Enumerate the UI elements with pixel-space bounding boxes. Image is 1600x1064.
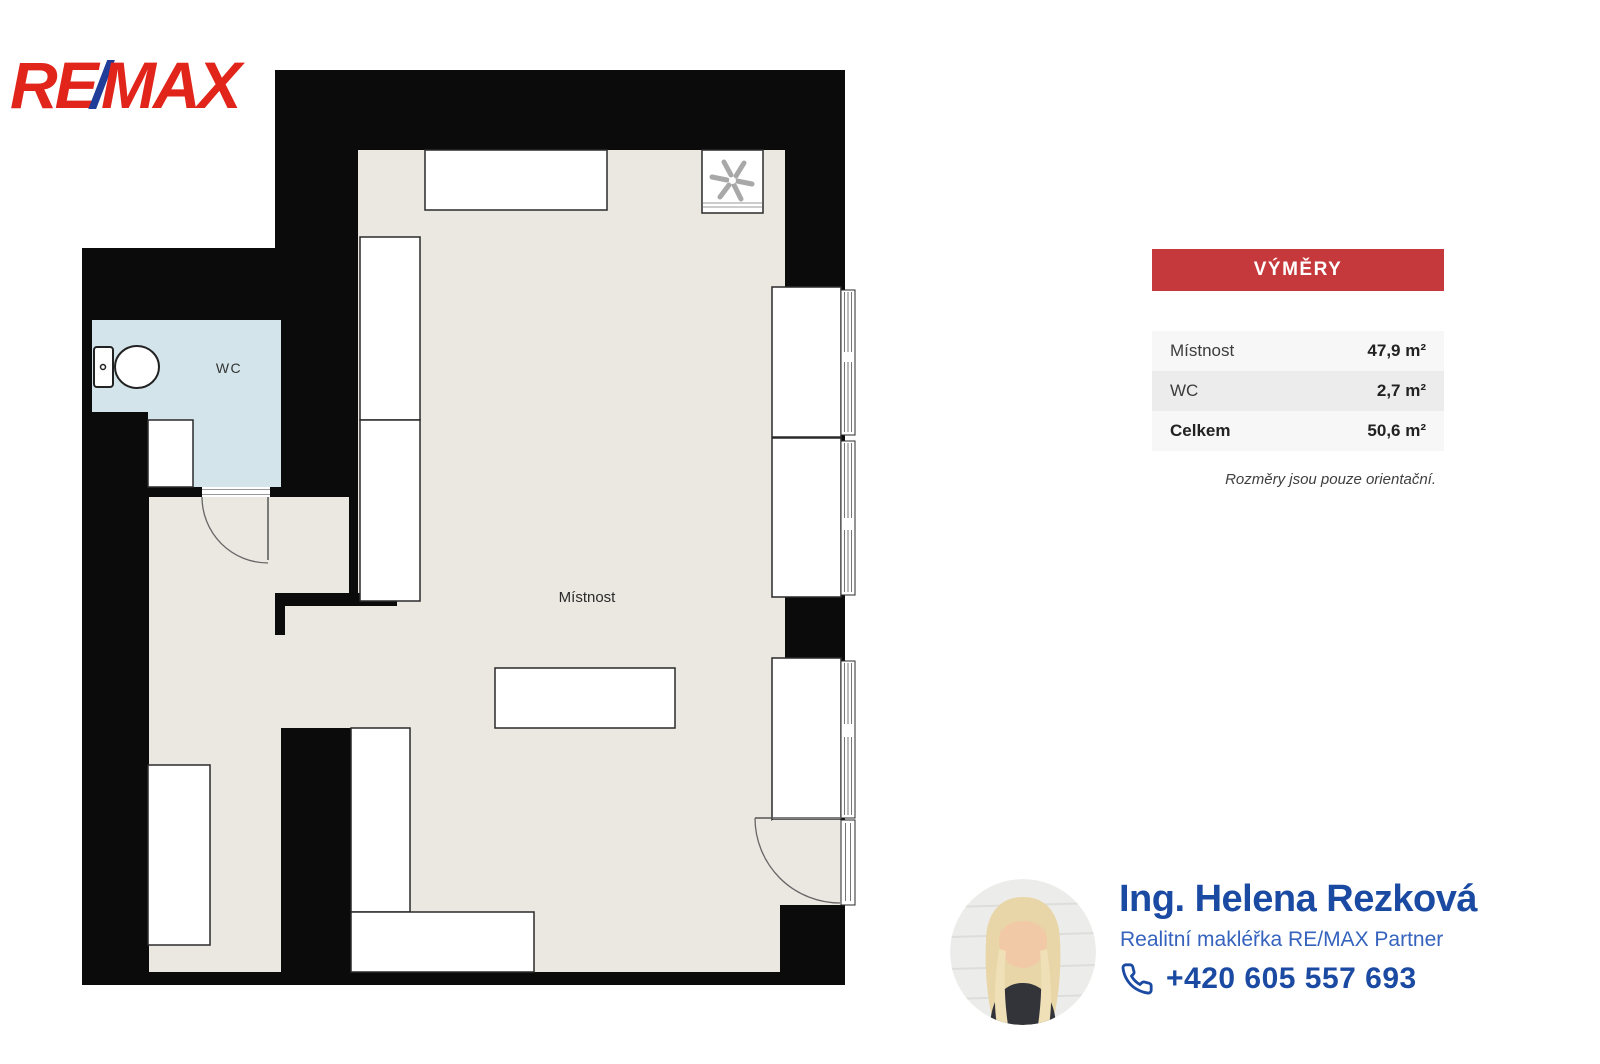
cabinet-tall-lower bbox=[360, 420, 420, 601]
row-label: Místnost bbox=[1170, 341, 1234, 361]
wc-label: WC bbox=[216, 360, 242, 376]
row-value: 2,7 m² bbox=[1377, 381, 1426, 401]
cabinet-left-column bbox=[351, 728, 410, 912]
areas-panel: VÝMĚRY Místnost 47,9 m² WC 2,7 m² Celkem… bbox=[1152, 249, 1444, 488]
windows bbox=[772, 287, 855, 820]
row-value: 50,6 m² bbox=[1367, 421, 1426, 441]
flyer-canvas: RE/MAX bbox=[0, 0, 1600, 1064]
main-room-floor bbox=[358, 150, 785, 972]
toilet-icon bbox=[94, 346, 159, 388]
window-sill-2 bbox=[772, 438, 841, 597]
row-label: Celkem bbox=[1170, 421, 1230, 441]
avatar-photo-placeholder bbox=[950, 879, 1096, 1025]
row-value: 47,9 m² bbox=[1367, 341, 1426, 361]
cabinet-annex bbox=[148, 765, 210, 945]
agent-name: Ing. Helena Rezková bbox=[1119, 878, 1477, 921]
agent-avatar bbox=[950, 879, 1096, 1025]
room-label: Místnost bbox=[559, 589, 617, 606]
table-row: WC 2,7 m² bbox=[1152, 371, 1444, 411]
cabinet-tall-upper bbox=[360, 237, 420, 420]
window-sill-3 bbox=[772, 658, 841, 820]
wc-cabinet bbox=[148, 420, 193, 487]
disclaimer-note: Rozměry jsou pouze orientační. bbox=[1152, 471, 1444, 488]
areas-table: Místnost 47,9 m² WC 2,7 m² Celkem 50,6 m… bbox=[1152, 331, 1444, 451]
central-table bbox=[495, 668, 675, 728]
cabinet-bottom-row bbox=[351, 912, 534, 972]
window-sill-1 bbox=[772, 287, 841, 437]
agent-phone-row: +420 605 557 693 bbox=[1120, 962, 1417, 996]
agent-title: Realitní makléřka RE/MAX Partner bbox=[1120, 928, 1443, 952]
row-label: WC bbox=[1170, 381, 1198, 401]
floor-plan: WC Místnost bbox=[70, 55, 860, 1000]
agent-phone-number: +420 605 557 693 bbox=[1166, 962, 1417, 996]
phone-icon bbox=[1120, 962, 1154, 996]
table-row: Místnost 47,9 m² bbox=[1152, 331, 1444, 371]
areas-panel-title: VÝMĚRY bbox=[1152, 249, 1444, 291]
table-row-total: Celkem 50,6 m² bbox=[1152, 411, 1444, 451]
fan-unit bbox=[702, 150, 763, 213]
counter-top bbox=[425, 150, 607, 210]
